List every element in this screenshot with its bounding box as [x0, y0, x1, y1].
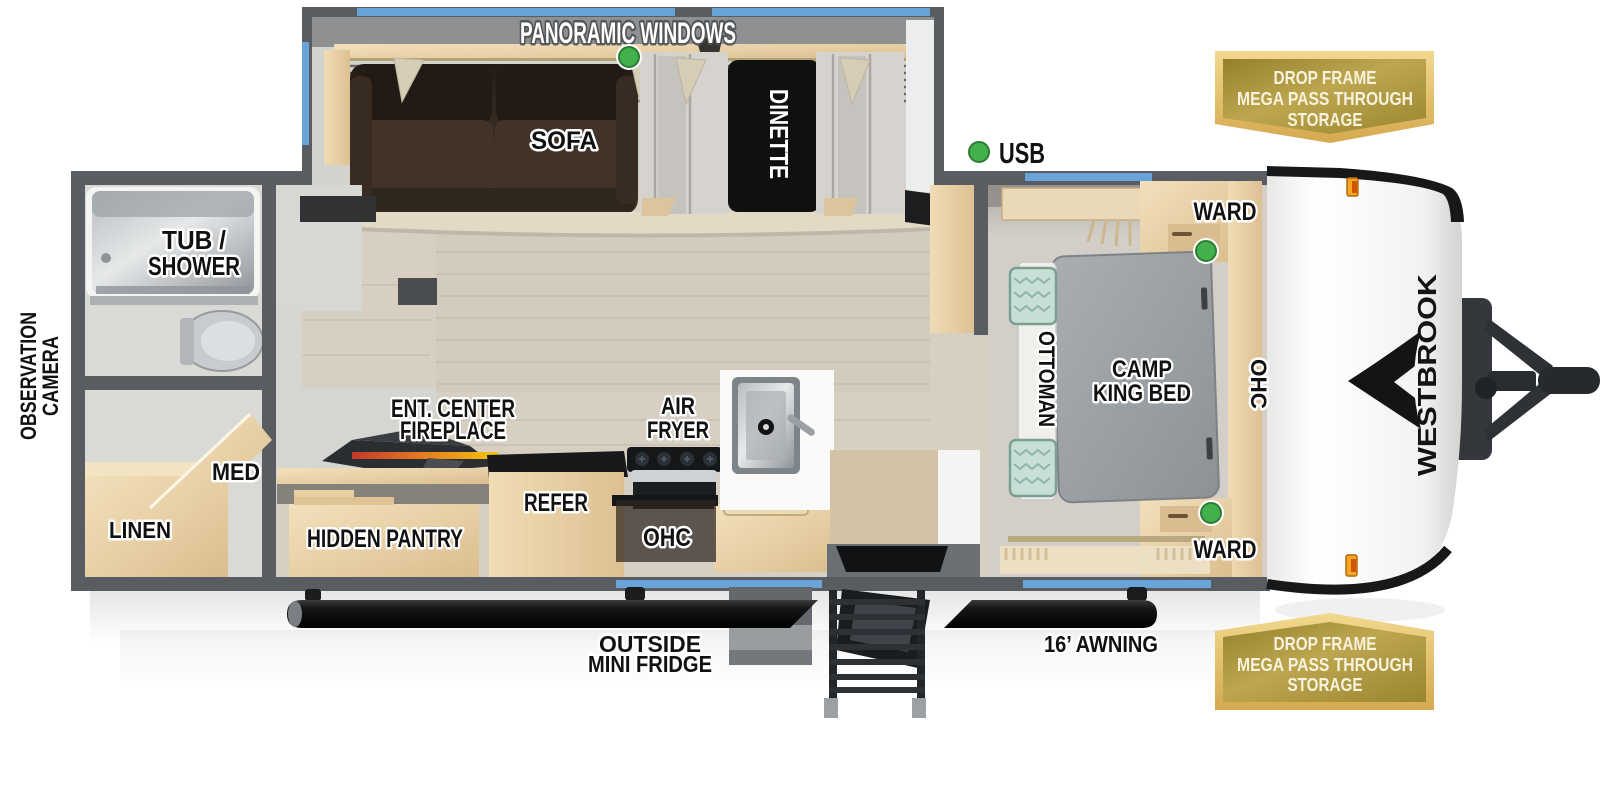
svg-text:OHC: OHC — [1246, 359, 1271, 409]
svg-text:MINI FRIDGE: MINI FRIDGE — [588, 651, 712, 677]
svg-text:WESTBROOK: WESTBROOK — [1412, 274, 1442, 476]
svg-text:SHOWER: SHOWER — [148, 251, 240, 281]
svg-text:AIR: AIR — [661, 393, 695, 420]
svg-text:MEGA PASS THROUGH: MEGA PASS THROUGH — [1237, 89, 1413, 109]
svg-text:SOFA: SOFA — [531, 127, 597, 155]
svg-text:CAMERA: CAMERA — [38, 336, 63, 416]
svg-text:USB: USB — [999, 138, 1045, 170]
svg-text:STORAGE: STORAGE — [1288, 675, 1363, 695]
svg-text:OHC: OHC — [643, 524, 691, 552]
svg-text:DINETTE: DINETTE — [764, 89, 794, 179]
svg-text:CAMP: CAMP — [1112, 356, 1172, 383]
svg-text:HIDDEN PANTRY: HIDDEN PANTRY — [307, 525, 463, 553]
svg-text:DROP FRAME: DROP FRAME — [1274, 68, 1377, 88]
svg-text:WARD: WARD — [1194, 198, 1257, 226]
svg-text:KING BED: KING BED — [1093, 380, 1191, 407]
svg-text:OTTOMAN: OTTOMAN — [1034, 331, 1059, 427]
svg-text:LINEN: LINEN — [109, 517, 171, 543]
svg-text:FRYER: FRYER — [647, 417, 709, 444]
svg-text:MED: MED — [212, 459, 260, 486]
svg-text:MEGA PASS THROUGH: MEGA PASS THROUGH — [1237, 655, 1413, 675]
svg-text:FIREPLACE: FIREPLACE — [400, 417, 506, 445]
svg-text:16’ AWNING: 16’ AWNING — [1044, 631, 1158, 657]
svg-text:WARD: WARD — [1194, 536, 1257, 564]
svg-text:STORAGE: STORAGE — [1288, 110, 1363, 130]
svg-text:DROP FRAME: DROP FRAME — [1274, 634, 1377, 654]
svg-text:REFER: REFER — [524, 489, 588, 517]
